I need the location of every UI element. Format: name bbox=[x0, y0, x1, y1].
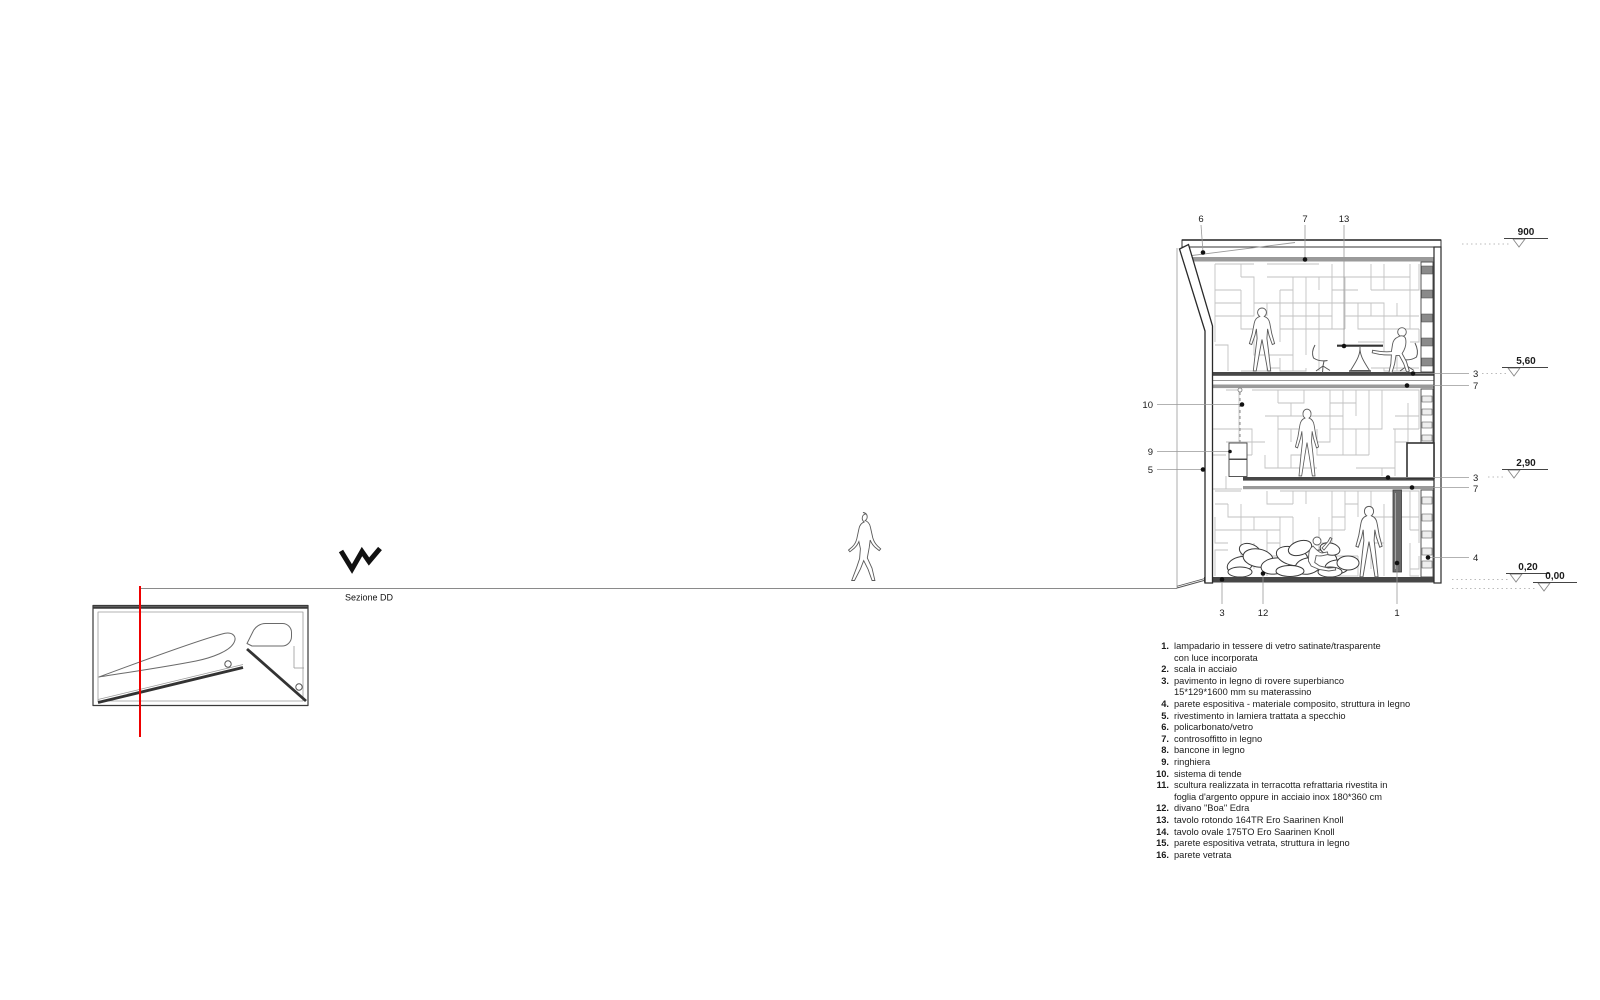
legend-item-text: divano "Boa" Edra bbox=[1174, 803, 1249, 815]
legend-item: 1.lampadario in tessere di vetro satinat… bbox=[1152, 641, 1482, 664]
wall-pattern bbox=[1213, 264, 1419, 576]
legend-item: 14.tavolo ovale 175TO Ero Saarinen Knoll bbox=[1152, 827, 1482, 839]
level-label-000: 0,00 bbox=[1545, 571, 1565, 582]
left-wall bbox=[1180, 245, 1213, 584]
figure-standing-mezzanine bbox=[1295, 409, 1318, 476]
mezzanine-corner-box bbox=[1407, 443, 1434, 478]
entry-ramp-line bbox=[1177, 579, 1204, 586]
callout-6: 6 bbox=[1198, 214, 1203, 225]
legend-item-number: 9. bbox=[1152, 757, 1169, 769]
callout-7-right-upper: 7 bbox=[1473, 381, 1478, 392]
legend-item-number: 10. bbox=[1152, 769, 1169, 781]
level-020: 0,20 bbox=[1452, 562, 1550, 582]
legend-item-text: parete espositiva - materiale composito,… bbox=[1174, 699, 1410, 711]
chandelier bbox=[1393, 490, 1402, 572]
key-plan-outline bbox=[93, 606, 308, 706]
legend-item-text: scala in acciaio bbox=[1174, 664, 1237, 676]
legend-item-number: 8. bbox=[1152, 745, 1169, 757]
legend-item: 12.divano "Boa" Edra bbox=[1152, 803, 1482, 815]
legend-item-text: sistema di tende bbox=[1174, 769, 1242, 781]
legend-item-text: pavimento in legno di rovere superbianco… bbox=[1174, 676, 1344, 699]
key-plan-column bbox=[225, 661, 231, 667]
legend-item-text: tavolo ovale 175TO Ero Saarinen Knoll bbox=[1174, 827, 1335, 839]
level-label-020: 0,20 bbox=[1518, 562, 1538, 573]
roof-slab bbox=[1182, 240, 1441, 247]
figure-seated-top-floor bbox=[1372, 328, 1409, 373]
swivel-chair-left bbox=[1313, 345, 1330, 373]
key-plan-column bbox=[296, 684, 302, 690]
steel-stair-strip bbox=[1421, 262, 1433, 577]
legend-item-number: 2. bbox=[1152, 664, 1169, 676]
legend-item-text: lampadario in tessere di vetro satinate/… bbox=[1174, 641, 1381, 664]
level-markers: 900 5,60 2,90 0,20 0,00 bbox=[1452, 227, 1577, 591]
legend-item: 16.parete vetrata bbox=[1152, 850, 1482, 862]
callout-3-right-mid: 3 bbox=[1473, 473, 1478, 484]
legend-item-number: 16. bbox=[1152, 850, 1169, 862]
legend-item-number: 14. bbox=[1152, 827, 1169, 839]
legend-item: 9.ringhiera bbox=[1152, 757, 1482, 769]
callout-3b: 3 bbox=[1219, 608, 1224, 619]
legend-item-number: 6. bbox=[1152, 722, 1169, 734]
section-title: Sezione DD bbox=[345, 593, 394, 603]
legend-item-number: 5. bbox=[1152, 711, 1169, 723]
legend-item: 10.sistema di tende bbox=[1152, 769, 1482, 781]
ceiling-band-top bbox=[1192, 257, 1434, 262]
legend-item-text: parete espositiva vetrata, struttura in … bbox=[1174, 838, 1350, 850]
level-900: 900 bbox=[1462, 227, 1548, 247]
figure-standing-top-floor bbox=[1249, 308, 1274, 371]
callout-1: 1 bbox=[1394, 608, 1399, 619]
legend-item-text: ringhiera bbox=[1174, 757, 1210, 769]
level-label-560: 5,60 bbox=[1516, 356, 1536, 367]
wall-pattern-lines bbox=[1213, 476, 1242, 489]
figure-walking bbox=[849, 513, 881, 581]
callout-13: 13 bbox=[1339, 214, 1350, 225]
ceiling-band-2 bbox=[1213, 385, 1434, 389]
ceiling-band-mezzanine bbox=[1243, 486, 1434, 489]
callout-10: 10 bbox=[1142, 400, 1153, 411]
callout-4-right: 4 bbox=[1473, 553, 1478, 564]
level-560: 5,60 bbox=[1482, 356, 1548, 376]
legend-item-text: bancone in legno bbox=[1174, 745, 1245, 757]
legend-item-text: tavolo rotondo 164TR Ero Saarinen Knoll bbox=[1174, 815, 1344, 827]
legend-item-number: 15. bbox=[1152, 838, 1169, 850]
logo-w-icon bbox=[341, 549, 380, 570]
legend-item: 13.tavolo rotondo 164TR Ero Saarinen Kno… bbox=[1152, 815, 1482, 827]
legend-item: 5.rivestimento in lamiera trattata a spe… bbox=[1152, 711, 1482, 723]
legend-item: 2.scala in acciaio bbox=[1152, 664, 1482, 676]
legend-item: 8.bancone in legno bbox=[1152, 745, 1482, 757]
legend: 1.lampadario in tessere di vetro satinat… bbox=[1152, 641, 1482, 861]
legend-item: 4.parete espositiva - materiale composit… bbox=[1152, 699, 1482, 711]
callout-7: 7 bbox=[1302, 214, 1307, 225]
boa-sofa bbox=[1225, 538, 1359, 577]
legend-item-number: 7. bbox=[1152, 734, 1169, 746]
legend-item-number: 1. bbox=[1152, 641, 1169, 664]
callout-7-right-mid: 7 bbox=[1473, 484, 1478, 495]
callout-3-right-upper: 3 bbox=[1473, 369, 1478, 380]
legend-item-number: 3. bbox=[1152, 676, 1169, 699]
entry-ramp bbox=[1177, 581, 1204, 589]
level-290: 2,90 bbox=[1488, 458, 1548, 478]
legend-item-number: 13. bbox=[1152, 815, 1169, 827]
legend-item-number: 11. bbox=[1152, 780, 1169, 803]
key-plan bbox=[93, 586, 308, 737]
legend-item-number: 12. bbox=[1152, 803, 1169, 815]
legend-item: 3.pavimento in legno di rovere superbian… bbox=[1152, 676, 1482, 699]
ground-floor-slab bbox=[1204, 577, 1441, 583]
level-label-900: 900 bbox=[1518, 227, 1535, 238]
legend-item-text: parete vetrata bbox=[1174, 850, 1231, 862]
level-label-290: 2,90 bbox=[1516, 458, 1536, 469]
floor-slab-2 bbox=[1207, 372, 1441, 376]
legend-item-text: scultura realizzata in terracotta refrat… bbox=[1174, 780, 1387, 803]
legend-item-text: controsoffitto in legno bbox=[1174, 734, 1262, 746]
legend-item: 6.policarbonato/vetro bbox=[1152, 722, 1482, 734]
callout-12: 12 bbox=[1258, 608, 1269, 619]
legend-item-text: policarbonato/vetro bbox=[1174, 722, 1253, 734]
legend-item: 15.parete espositiva vetrata, struttura … bbox=[1152, 838, 1482, 850]
legend-item: 7.controsoffitto in legno bbox=[1152, 734, 1482, 746]
architectural-sheet: Sezione DD bbox=[0, 0, 1600, 1000]
callout-5: 5 bbox=[1148, 465, 1153, 476]
legend-item-text: rivestimento in lamiera trattata a specc… bbox=[1174, 711, 1346, 723]
callout-9: 9 bbox=[1148, 447, 1153, 458]
round-table bbox=[1337, 346, 1383, 371]
legend-item: 11.scultura realizzata in terracotta ref… bbox=[1152, 780, 1482, 803]
right-wall bbox=[1434, 247, 1441, 583]
legend-item-number: 4. bbox=[1152, 699, 1169, 711]
railing bbox=[1229, 443, 1247, 477]
